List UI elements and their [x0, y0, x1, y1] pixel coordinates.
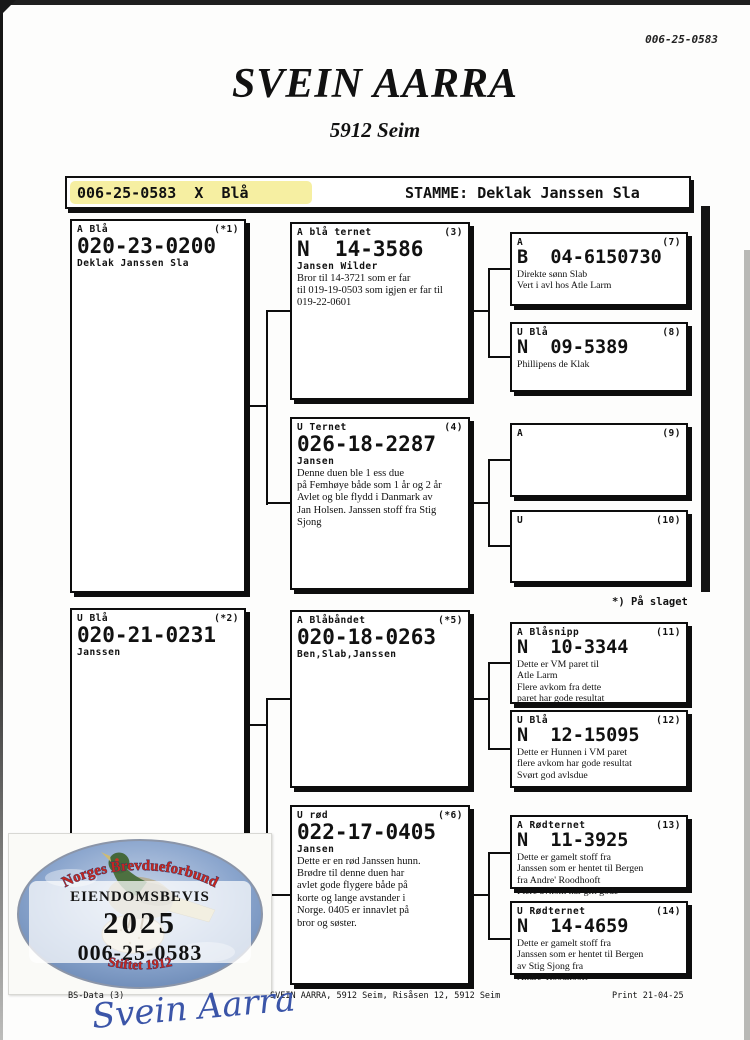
- box-color-label: U: [517, 515, 523, 526]
- box-position-number: (11): [656, 627, 681, 638]
- pedigree-box-7: A(7) B 04-6150730 Direkte sønn Slab Vert…: [510, 232, 688, 306]
- connector-line: [488, 459, 490, 547]
- box-note: Dette er gamelt stoff fra Janssen som er…: [517, 938, 681, 983]
- box-position-number: (*5): [438, 615, 463, 626]
- pedigree-box-1: A Blå(*1) 020-23-0200 Deklak Janssen Sla: [70, 219, 246, 593]
- pedigree-box-8: U Blå(8) N 09-5389 Phillipens de Klak: [510, 322, 688, 392]
- connector-line: [470, 894, 488, 896]
- box-ring-number: 022-17-0405: [297, 821, 463, 844]
- page-title: SVEIN AARRA: [0, 60, 750, 108]
- box-note: Dette er Hunnen i VM paret flere avkom h…: [517, 747, 681, 781]
- ownership-sticker: EIENDOMSBEVIS 2025 006-25-0583 Norges Br…: [8, 833, 272, 995]
- connector-line: [246, 405, 266, 407]
- page-ref-number: 006-25-0583: [645, 33, 718, 46]
- box-ring-number: N 09-5389: [517, 338, 681, 358]
- connector-line: [266, 310, 290, 312]
- box-position-number: (14): [656, 906, 681, 917]
- box-ring-number: N 14-4659: [517, 917, 681, 937]
- box-position-number: (7): [662, 237, 681, 248]
- connector-line: [488, 459, 510, 461]
- connector-line: [266, 698, 290, 700]
- connector-line: [470, 698, 488, 700]
- box-ring-number: N 11-3925: [517, 831, 681, 851]
- box-position-number: (*6): [438, 810, 463, 821]
- pedigree-box-4: U Ternet(4) 026-18-2287 Jansen Denne due…: [290, 417, 470, 590]
- connector-line: [488, 852, 510, 854]
- box-position-number: (12): [656, 715, 681, 726]
- connector-line: [470, 502, 488, 504]
- box-strain: Ben,Slab,Janssen: [297, 649, 463, 660]
- pedigree-box-9: A(9): [510, 423, 688, 497]
- box-ring-number: 020-23-0200: [77, 235, 239, 258]
- box-note: Bror til 14-3721 som er far til 019-19-0…: [297, 273, 463, 310]
- sticker-graphic: EIENDOMSBEVIS 2025 006-25-0583 Norges Br…: [9, 834, 271, 994]
- box-position-number: (4): [444, 422, 463, 433]
- pedigree-box-10: U(10): [510, 510, 688, 583]
- scan-edge-right: [701, 206, 710, 592]
- connector-line: [488, 356, 510, 358]
- box-note: Phillipens de Klak: [517, 359, 681, 370]
- scan-strip-right: [744, 250, 750, 1040]
- box-strain: Janssen: [77, 647, 239, 658]
- box-note: Dette er en rød Janssen hunn. Brødre til…: [297, 856, 463, 930]
- connector-line: [266, 502, 290, 504]
- connector-line: [488, 662, 510, 664]
- box-ring-number: N 12-15095: [517, 726, 681, 746]
- pedigree-box-12: U Blå(12) N 12-15095 Dette er Hunnen i V…: [510, 710, 688, 788]
- sticker-doc-type: EIENDOMSBEVIS: [70, 889, 210, 905]
- pedigree-box-6: U rød(*6) 022-17-0405 Jansen Dette er en…: [290, 805, 470, 985]
- connector-line: [488, 545, 510, 547]
- signature: Svein Aarra: [85, 988, 325, 1040]
- box-position-number: (13): [656, 820, 681, 831]
- connector-line: [266, 310, 268, 505]
- box-note: Denne duen ble 1 ess due på Femhøye både…: [297, 468, 463, 530]
- box-position-number: (*2): [214, 613, 239, 624]
- sticker-year: 2025: [103, 905, 177, 940]
- connector-line: [488, 662, 490, 750]
- box-strain: Jansen Wilder: [297, 261, 463, 272]
- box-position-number: (9): [662, 428, 681, 439]
- connector-line: [488, 938, 510, 940]
- box-ring-number: 020-21-0231: [77, 624, 239, 647]
- page-subtitle: 5912 Seim: [0, 118, 750, 143]
- box-ring-number: N 14-3586: [297, 238, 463, 261]
- footnote: *) På slaget: [612, 596, 688, 608]
- id-bar: 006-25-0583 X Blå STAMME: Deklak Janssen…: [65, 176, 691, 209]
- box-strain: Jansen: [297, 456, 463, 467]
- pedigree-box-2: U Blå(*2) 020-21-0231 Janssen: [70, 608, 246, 843]
- box-ring-number: N 10-3344: [517, 638, 681, 658]
- connector-line: [488, 748, 510, 750]
- scan-corner-mark: [0, 0, 16, 16]
- scan-edge-left: [0, 0, 3, 1040]
- box-note: Dette er VM paret til Atle Larm Flere av…: [517, 659, 681, 704]
- connector-line: [488, 268, 490, 358]
- box-color-label: A: [517, 428, 523, 439]
- pedigree-box-14: U Rødternet(14) N 14-4659 Dette er gamel…: [510, 901, 688, 975]
- ring-id-and-color: 006-25-0583 X Blå: [77, 184, 249, 202]
- connector-line: [488, 852, 490, 940]
- box-position-number: (*1): [214, 224, 239, 235]
- connector-line: [470, 310, 488, 312]
- pedigree-box-13: A Rødternet(13) N 11-3925 Dette er gamel…: [510, 815, 688, 889]
- pedigree-box-5: A Blåbåndet(*5) 020-18-0263 Ben,Slab,Jan…: [290, 610, 470, 788]
- box-note: Dette er gamelt stoff fra Janssen som er…: [517, 852, 681, 897]
- box-strain: Jansen: [297, 844, 463, 855]
- pedigree-document: 006-25-0583 SVEIN AARRA 5912 Seim 006-25…: [0, 0, 750, 1040]
- pedigree-box-3: A blå ternet(3) N 14-3586 Jansen Wilder …: [290, 222, 470, 400]
- svg-text:Svein Aarra: Svein Aarra: [90, 988, 297, 1037]
- box-ring-number: 026-18-2287: [297, 433, 463, 456]
- scan-edge-top: [0, 0, 750, 5]
- box-ring-number: B 04-6150730: [517, 248, 681, 268]
- box-position-number: (10): [656, 515, 681, 526]
- box-strain: Deklak Janssen Sla: [77, 258, 239, 269]
- connector-line: [246, 724, 266, 726]
- box-ring-number: 020-18-0263: [297, 626, 463, 649]
- box-position-number: (8): [662, 327, 681, 338]
- pedigree-box-11: A Blåsnipp(11) N 10-3344 Dette er VM par…: [510, 622, 688, 704]
- box-note: Direkte sønn Slab Vert i avl hos Atle La…: [517, 269, 681, 292]
- stamme-label: STAMME: Deklak Janssen Sla: [405, 184, 640, 202]
- connector-line: [488, 268, 510, 270]
- box-position-number: (3): [444, 227, 463, 238]
- footer-print-date: Print 21-04-25: [612, 991, 684, 1001]
